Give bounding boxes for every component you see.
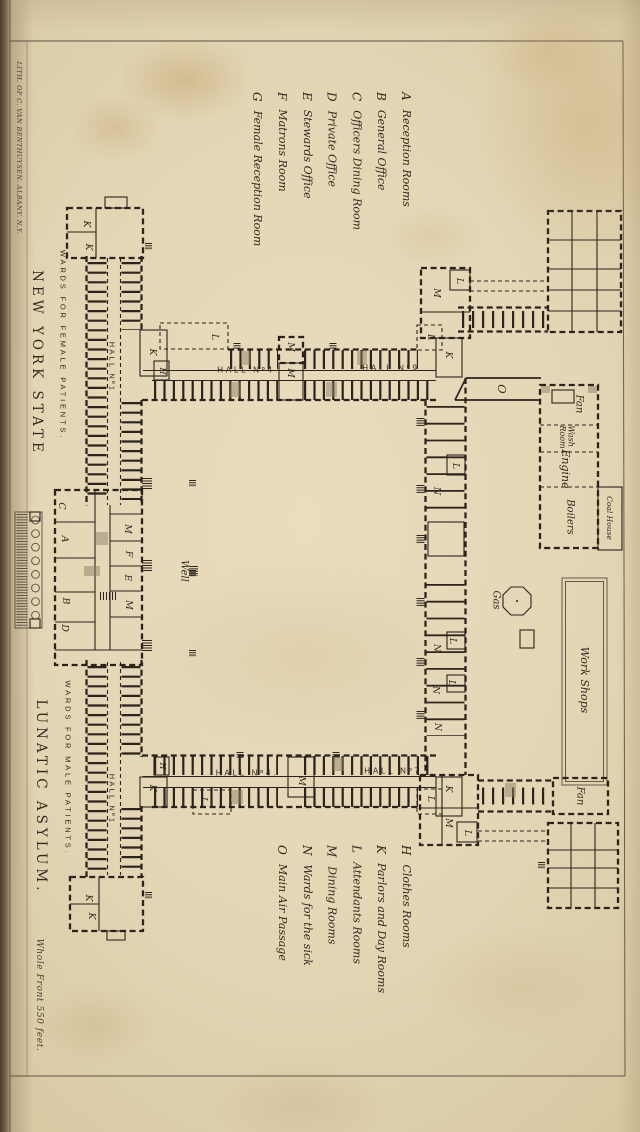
legend-item: HClothes Rooms [398, 845, 412, 1085]
plan-label: L [462, 830, 472, 836]
plan-label: L [454, 278, 464, 284]
plan-label: WARDS FOR MALE PATIENTS. [64, 681, 73, 856]
state-title: NEW YORK STATE [29, 270, 45, 456]
lithographer-credit: LITH. OF C. VAN BENTHUYSEN. ALBANY. N.Y. [15, 62, 23, 235]
asylum-floor-plan-page: LITH. OF C. VAN BENTHUYSEN. ALBANY. N.Y.… [0, 0, 640, 1132]
legend-item: LAttendants Rooms [349, 845, 363, 1085]
plan-label: L [446, 680, 456, 686]
plan-label: K [147, 784, 157, 791]
legend-key: L [349, 845, 363, 853]
legend-item: FMatrons Room [274, 92, 288, 332]
legend-key: H [399, 845, 413, 855]
legend-key: G [250, 92, 264, 102]
plan-label: H [158, 763, 166, 770]
legend-label: Female Reception Room [251, 111, 264, 247]
plan-label: Boilers [564, 499, 575, 535]
rear-wing-bottom [420, 775, 618, 908]
plan-label: Wash Room [558, 425, 575, 448]
plan-label: M [123, 600, 133, 610]
portico [15, 512, 42, 628]
legend-item: NWards for the sick [299, 845, 313, 1085]
legend-key: O [275, 845, 289, 855]
plan-label: WARDS FOR FEMALE PATIENTS. [59, 250, 68, 440]
plan-label: Work Shops [578, 647, 590, 714]
male-wing [70, 660, 143, 940]
plan-label: M [443, 818, 453, 828]
legend-key: E [300, 92, 314, 101]
legend-key: A [399, 92, 413, 101]
plan-label: HALL Nº4 [217, 366, 275, 375]
legend-label: Reception Rooms [400, 110, 413, 207]
legend-label: Parlors and Day Rooms [375, 863, 388, 993]
plan-label: M [296, 776, 306, 786]
legend-key: M [325, 845, 339, 857]
legend-item: OMain Air Passage [274, 845, 288, 1085]
legend-item: EStewards Office [299, 92, 313, 332]
legend-rooms-h-o: HClothes RoomsKParlors and Day RoomsLAtt… [263, 845, 412, 1085]
legend-label: Stewards Office [301, 110, 314, 199]
plan-label: L [198, 797, 208, 803]
legend-key: B [374, 92, 388, 101]
plan-label: O [496, 384, 508, 393]
gas-house [503, 587, 534, 648]
plan-label: K [83, 894, 93, 901]
rear-wing-top [421, 211, 621, 338]
plan-label: HALL Nº9 [362, 364, 420, 373]
plan-label: HALL Nº1 [108, 342, 117, 393]
plan-label: HALL Nº7 [364, 767, 422, 776]
top-corridor [140, 323, 462, 400]
plan-label: D [59, 624, 69, 632]
plan-label: HALL Nº1 [108, 774, 117, 825]
plan-label: K [147, 348, 157, 355]
legend-rooms-a-g: AReception RoomsBGeneral OfficeCOfficers… [238, 92, 412, 332]
legend-item: COfficers Dining Room [349, 92, 363, 332]
plan-label: E [122, 575, 132, 582]
plan-label: C [56, 502, 66, 509]
legend-item: GFemale Reception Room [249, 92, 263, 332]
legend-label: Private Office [326, 111, 339, 187]
plan-label: H [158, 368, 166, 375]
plan-label: N [432, 723, 442, 731]
asylum-title: LUNATIC ASYLUM. [33, 699, 49, 894]
female-wing [67, 197, 143, 506]
plan-label: N [431, 487, 441, 495]
plan-label: M [285, 342, 295, 352]
legend-item: KParlors and Day Rooms [373, 845, 387, 1085]
legend-item: DPrivate Office [324, 92, 338, 332]
plan-label: Fan [573, 395, 584, 414]
plan-label: L [450, 463, 460, 469]
legend-item: MDining Rooms [324, 845, 338, 1085]
plan-label: M [285, 368, 295, 378]
plan-label: HALL Nº4. [216, 769, 279, 778]
legend-item: AReception Rooms [398, 92, 412, 332]
plan-label: M [122, 524, 132, 534]
plan-label: N [430, 686, 440, 694]
plan-label: K [443, 351, 453, 358]
legend-label: Clothes Rooms [400, 864, 413, 947]
legend-item: BGeneral Office [373, 92, 387, 332]
legend-label: General Office [375, 110, 388, 191]
plan-label: L [425, 334, 435, 340]
legend-key: N [300, 845, 314, 856]
legend-key: C [349, 92, 363, 101]
scale-note: Whole Front 550 feet. [34, 939, 44, 1052]
legend-label: Wards for the sick [301, 865, 314, 966]
legend-key: K [374, 845, 388, 854]
plan-label: Fan [574, 787, 585, 806]
plan-label: K [83, 243, 93, 250]
plan-label: K [443, 785, 453, 792]
plan-label: Coal House [605, 496, 613, 540]
plan-label: A [59, 536, 69, 543]
legend-label: Officers Dining Room [350, 110, 363, 230]
plan-label: L [447, 638, 457, 644]
plan-label: Gas [490, 590, 501, 609]
legend-label: Dining Rooms [326, 866, 339, 944]
plan-label: N [431, 644, 441, 652]
legend-label: Attendants Rooms [350, 862, 363, 964]
legend-key: D [325, 92, 339, 102]
plan-label: Engine [559, 449, 571, 488]
legend-label: Matrons Room [276, 109, 289, 191]
plan-label: B [60, 598, 70, 605]
plan-label: M [431, 288, 441, 298]
plan-label: F [123, 551, 133, 558]
plan-label: Well [178, 560, 189, 582]
legend-key: F [275, 92, 289, 100]
legend-label: Main Air Passage [276, 864, 289, 961]
plan-label: K [81, 220, 91, 227]
plan-label: L [209, 334, 219, 340]
n-ward-column [421, 378, 466, 775]
plan-label: K [86, 912, 96, 919]
plan-label: L [425, 796, 435, 802]
